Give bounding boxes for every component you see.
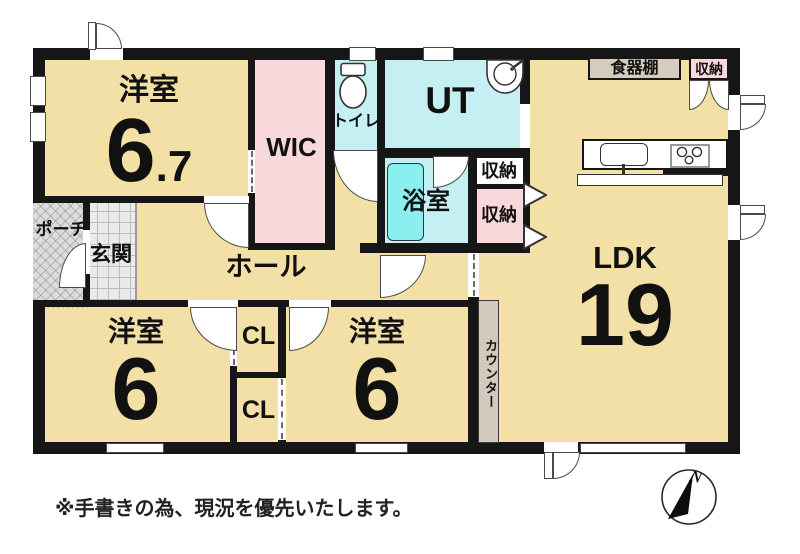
window-left-1 (30, 76, 46, 106)
toilet-label: トイレ (332, 114, 380, 130)
entrance-label: 玄関 (86, 244, 136, 265)
storage-mid-lower-label: 収納 (475, 206, 523, 224)
wic-sliding-opening (248, 150, 255, 193)
right-door-opening-2 (728, 205, 740, 240)
top-exterior-door-panel (88, 22, 96, 50)
kitchen-sink (600, 143, 648, 166)
bottom-door-arc (553, 452, 580, 479)
stove-icon (670, 144, 710, 168)
bedroom-nw-size-fraction: .7 (156, 142, 193, 191)
bedroom-nw-door-opening (204, 196, 249, 203)
window-left-2 (30, 112, 46, 142)
kitchen-lower-shelf (577, 174, 723, 186)
cupboard-label: 食器棚 (588, 61, 681, 77)
wall-left-lower (33, 300, 45, 454)
utility-label: UT (400, 82, 500, 119)
closet-upper-label: CL (237, 324, 280, 349)
porch-label: ポーチ (33, 221, 89, 238)
hall-ldk-sliding-opening (468, 253, 479, 297)
hall-label: ホール (222, 254, 310, 281)
wall-bath-west (377, 148, 385, 253)
window-bottom-3 (580, 443, 686, 453)
bedroom-s-label: 洋室 6 (317, 318, 437, 430)
window-top-2 (423, 47, 454, 61)
counter-label: カウンター (481, 306, 497, 441)
storage-ne-label: 収納 (689, 62, 729, 76)
bedroom-sw-label: 洋室 6 (76, 318, 196, 430)
wall-toilet-ut (377, 58, 385, 148)
compass-icon: N (658, 466, 722, 530)
right-door-opening-1 (728, 95, 740, 130)
wall-wic-south (248, 243, 335, 250)
window-bottom-1 (106, 443, 164, 453)
closet-lower-label: CL (237, 398, 280, 423)
right-door-2-panel (740, 205, 765, 214)
storage-door-triangle-2 (523, 224, 547, 250)
ut-ldk-opening (520, 104, 530, 148)
bedroom-nw-label: 洋室 6.7 (85, 76, 213, 193)
window-top-1 (349, 47, 376, 61)
window-bottom-2 (355, 443, 408, 453)
bedroom-s-door-opening (289, 300, 331, 307)
disclaimer-note: ※手書きの為、現況を優先いたします。 (55, 492, 412, 521)
bedroom-sw-size: 6 (76, 349, 196, 430)
ldk-label: LDK 19 (565, 242, 685, 356)
storage-door-triangle-1 (523, 182, 547, 208)
right-door-1-arc (740, 104, 766, 130)
bedroom-nw-size: 6 (106, 101, 156, 201)
wic-label: WIC (255, 134, 328, 160)
bottom-door-panel (544, 452, 553, 479)
right-door-2-arc (740, 214, 766, 240)
bedroom-sw-door-opening (188, 300, 238, 307)
storage-mid-upper-label: 収納 (475, 162, 523, 180)
wall-storage-mid (470, 184, 523, 189)
floor-plan: 洋室 6.7 WIC トイレ UT 浴室 収納 収納 食器棚 収納 LDK 19… (0, 0, 800, 554)
ldk-size: 19 (565, 275, 685, 356)
top-exterior-door-arc (96, 23, 122, 49)
right-door-1-panel (740, 95, 765, 104)
bath-label: 浴室 (388, 190, 464, 214)
wall-bath-south (360, 243, 530, 253)
wall-closet-mid (230, 372, 285, 378)
wall-hall-south (33, 300, 470, 307)
wall-nw-wic-upper (248, 58, 255, 150)
bedroom-s-size: 6 (317, 349, 437, 430)
toilet-icon (338, 62, 368, 110)
